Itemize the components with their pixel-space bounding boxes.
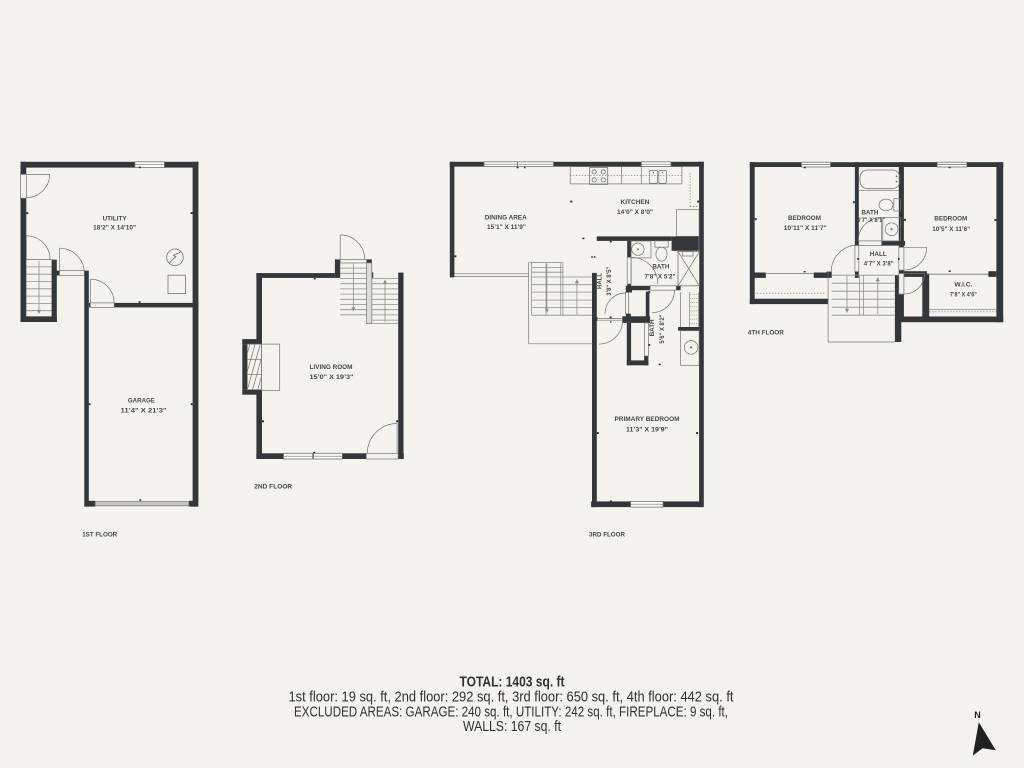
svg-text:10’5" X 11’6": 10’5" X 11’6" xyxy=(932,226,970,233)
svg-text:4’7" X 8’1": 4’7" X 8’1" xyxy=(857,217,885,224)
svg-text:HALL: HALL xyxy=(870,251,887,258)
svg-text:GARAGE: GARAGE xyxy=(128,397,155,404)
svg-text:HALL: HALL xyxy=(596,273,603,289)
svg-text:15’1" X 11’9": 15’1" X 11’9" xyxy=(487,224,526,231)
svg-text:11’3" X 19’9": 11’3" X 19’9" xyxy=(626,427,668,434)
svg-text:LIVING ROOM: LIVING ROOM xyxy=(310,364,353,371)
svg-text:TOTAL: 1403 sq. ft: TOTAL: 1403 sq. ft xyxy=(460,675,565,691)
svg-text:EXCLUDED AREAS: GARAGE: 240 sq: EXCLUDED AREAS: GARAGE: 240 sq. ft, UTIL… xyxy=(294,704,728,720)
svg-text:BATH: BATH xyxy=(649,319,656,336)
svg-text:3’8" X 8’5": 3’8" X 8’5" xyxy=(606,267,613,296)
svg-text:14’0" X 8’0": 14’0" X 8’0" xyxy=(617,209,653,216)
svg-text:7’8" X 5’2": 7’8" X 5’2" xyxy=(645,273,676,280)
svg-text:11’4" X 21’3": 11’4" X 21’3" xyxy=(121,407,167,414)
svg-text:PRIMARY BEDROOM: PRIMARY BEDROOM xyxy=(615,416,680,423)
svg-text:BEDROOM: BEDROOM xyxy=(788,215,821,222)
svg-text:WALLS: 167 sq. ft: WALLS: 167 sq. ft xyxy=(463,719,561,735)
svg-text:4TH FLOOR: 4TH FLOOR xyxy=(748,330,784,337)
svg-text:UTILITY: UTILITY xyxy=(103,216,128,223)
svg-text:BATH: BATH xyxy=(861,210,878,217)
svg-text:5’6" X 8’2": 5’6" X 8’2" xyxy=(659,315,666,344)
svg-text:DINING AREA: DINING AREA xyxy=(485,214,527,221)
svg-text:2ND FLOOR: 2ND FLOOR xyxy=(254,484,292,491)
svg-text:1st floor: 19 sq. ft, 2nd floo: 1st floor: 19 sq. ft, 2nd floor: 292 sq.… xyxy=(289,689,734,705)
svg-text:10’11" X 11’7": 10’11" X 11’7" xyxy=(784,225,827,232)
svg-text:3RD FLOOR: 3RD FLOOR xyxy=(589,532,625,539)
svg-text:N: N xyxy=(974,710,981,720)
svg-text:15’0" X 19’3": 15’0" X 19’3" xyxy=(310,374,354,381)
svg-text:18’2" X 14’10": 18’2" X 14’10" xyxy=(93,225,136,232)
svg-text:1ST FLOOR: 1ST FLOOR xyxy=(82,532,117,539)
svg-text:KITCHEN: KITCHEN xyxy=(621,199,650,206)
svg-text:4’7" X 3’8": 4’7" X 3’8" xyxy=(864,260,894,267)
svg-text:BEDROOM: BEDROOM xyxy=(934,216,967,223)
svg-text:7’8" X 4’6": 7’8" X 4’6" xyxy=(950,292,977,299)
svg-text:BATH: BATH xyxy=(652,263,669,270)
svg-text:W.I.C.: W.I.C. xyxy=(954,281,972,288)
